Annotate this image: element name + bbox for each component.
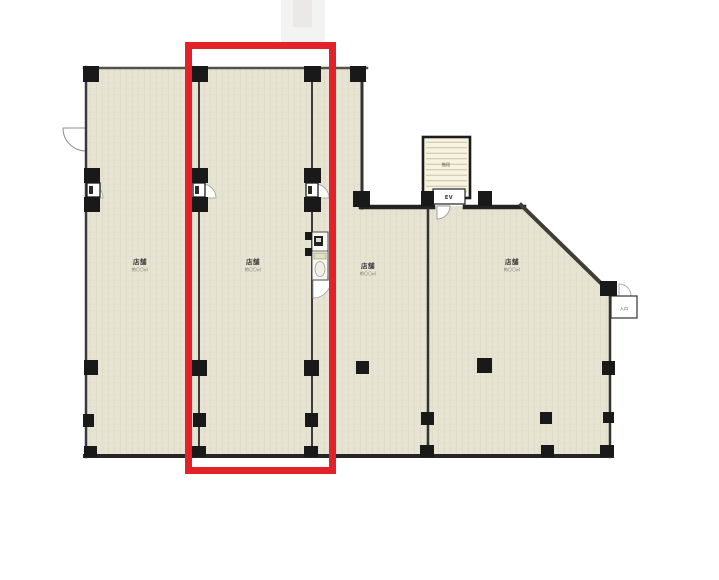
toilet-tank (314, 253, 326, 259)
floor-plan-page: 階段 EV 入口 (0, 0, 719, 580)
unit-1-area: 約〇〇㎡ (132, 267, 148, 272)
unit-3-label: 店舗 (361, 261, 375, 270)
unit-2-label: 店舗 (246, 257, 260, 266)
floor-area (86, 68, 610, 456)
stairwell-label: 階段 (442, 161, 451, 168)
unit-2-area: 約〇〇㎡ (245, 267, 261, 272)
unit-1-label: 店舗 (133, 257, 147, 266)
door-leaf (87, 183, 100, 197)
unit-4-area: 約〇〇㎡ (504, 267, 520, 272)
exterior-door-arc (63, 128, 86, 151)
unit-4-label-group: 店舗 約〇〇㎡ (504, 257, 520, 272)
toilet-bowl (315, 262, 325, 277)
entrance-label: 入口 (620, 306, 628, 311)
entrance-door-arc (619, 284, 631, 296)
door-detail (308, 186, 312, 194)
scan-artifact (281, 0, 325, 48)
floor-plan-drawing: 階段 EV 入口 (0, 0, 719, 580)
unit-3-label-group: 店舗 約〇〇㎡ (360, 261, 376, 276)
elevator-label: EV (445, 195, 453, 201)
door-detail (89, 186, 93, 194)
door-detail (195, 186, 199, 194)
unit-1-label-group: 店舗 約〇〇㎡ (132, 257, 148, 272)
unit-3-area: 約〇〇㎡ (360, 271, 376, 276)
unit-2-label-group: 店舗 約〇〇㎡ (245, 257, 261, 272)
unit-4-label: 店舗 (505, 257, 519, 266)
